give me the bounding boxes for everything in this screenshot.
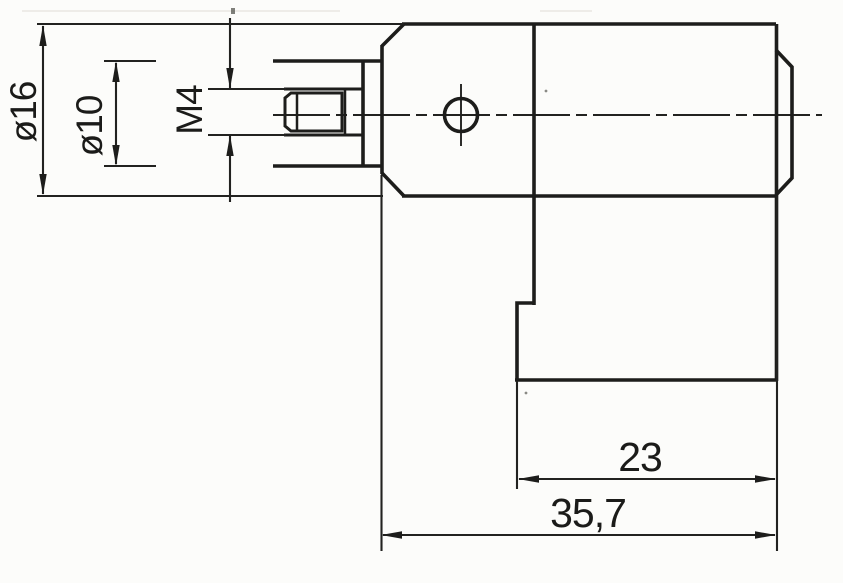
arrowhead-down-icon (112, 145, 119, 166)
arrowhead-up-icon (39, 25, 46, 46)
dim-label-dia16: ø16 (3, 82, 44, 143)
block-top-chamfer (382, 24, 404, 46)
dim-label-dia10: ø10 (69, 95, 110, 156)
dimension-dia10: ø10 (69, 61, 156, 166)
arrowhead-left-icon (518, 475, 539, 482)
dim-label-m4: M4 (169, 85, 210, 135)
object-outline (273, 24, 792, 381)
connector-step (517, 303, 534, 381)
threaded-stud (284, 89, 363, 135)
stud-core-outline (285, 93, 342, 131)
scan-speck (231, 8, 235, 14)
scan-speck (525, 392, 528, 395)
arrowhead-up-icon (226, 135, 233, 156)
scan-artifacts (22, 8, 592, 394)
dim-label-357: 35,7 (550, 490, 626, 536)
arrowhead-down-icon (39, 174, 46, 195)
drawing-page: ø16 ø10 M4 23 35,7 (0, 0, 843, 583)
dimension-357: 35,7 (381, 175, 776, 551)
arrowhead-left-icon (381, 531, 402, 538)
dimension-m4: M4 (169, 18, 286, 202)
arrowhead-up-icon (112, 61, 119, 82)
block-bottom-chamfer (382, 173, 404, 196)
end-cap-outline (776, 50, 792, 195)
technical-drawing: ø16 ø10 M4 23 35,7 (0, 0, 843, 583)
centerlines (273, 84, 822, 146)
arrowhead-down-icon (226, 68, 233, 89)
dim-label-23: 23 (618, 434, 662, 480)
arrowhead-right-icon (755, 475, 776, 482)
arrowhead-right-icon (755, 531, 776, 538)
scan-speck (545, 90, 548, 93)
